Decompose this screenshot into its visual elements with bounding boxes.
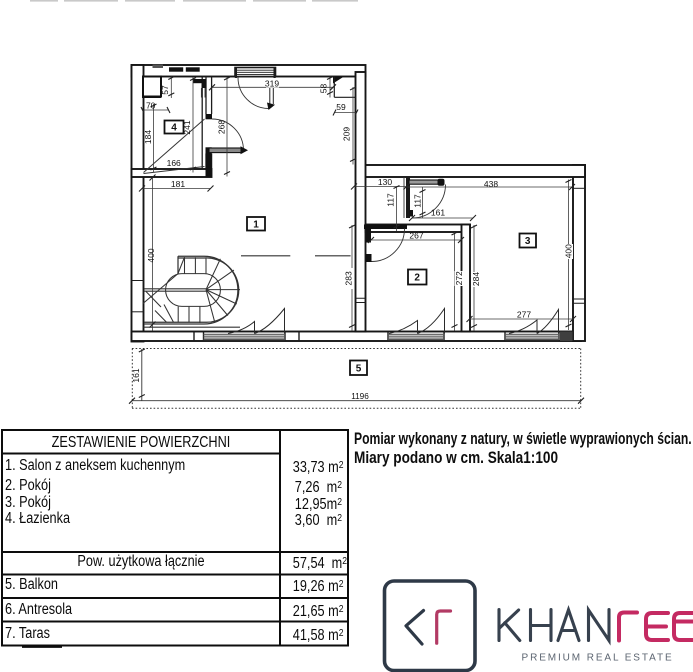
svg-text:181: 181 [171,179,185,189]
svg-text:184: 184 [143,130,153,144]
svg-text:319: 319 [265,79,279,89]
svg-text:4: 4 [171,123,177,134]
svg-text:268: 268 [217,120,227,134]
svg-text:70: 70 [146,101,156,111]
svg-text:272: 272 [454,271,464,285]
svg-text:117: 117 [413,194,423,208]
svg-text:PREMIUM REAL ESTATE: PREMIUM REAL ESTATE [522,653,674,664]
svg-text:438: 438 [484,179,498,189]
svg-text:3: 3 [525,236,531,247]
svg-text:161: 161 [431,208,445,218]
svg-text:5: 5 [356,364,362,375]
svg-text:58: 58 [319,84,329,94]
svg-text:130: 130 [378,177,392,187]
svg-text:117: 117 [386,193,396,207]
svg-text:400: 400 [563,244,573,258]
svg-text:277: 277 [517,310,531,320]
svg-text:166: 166 [167,158,181,168]
svg-text:1196: 1196 [351,392,369,401]
svg-text:1: 1 [253,220,259,231]
svg-text:209: 209 [342,127,352,141]
svg-text:267: 267 [409,231,423,241]
svg-text:2: 2 [414,273,420,284]
svg-text:59: 59 [336,102,346,112]
svg-text:284: 284 [471,272,481,286]
svg-text:161: 161 [131,368,141,382]
svg-text:400: 400 [146,248,156,262]
svg-text:57: 57 [160,85,170,95]
svg-text:283: 283 [343,271,353,285]
